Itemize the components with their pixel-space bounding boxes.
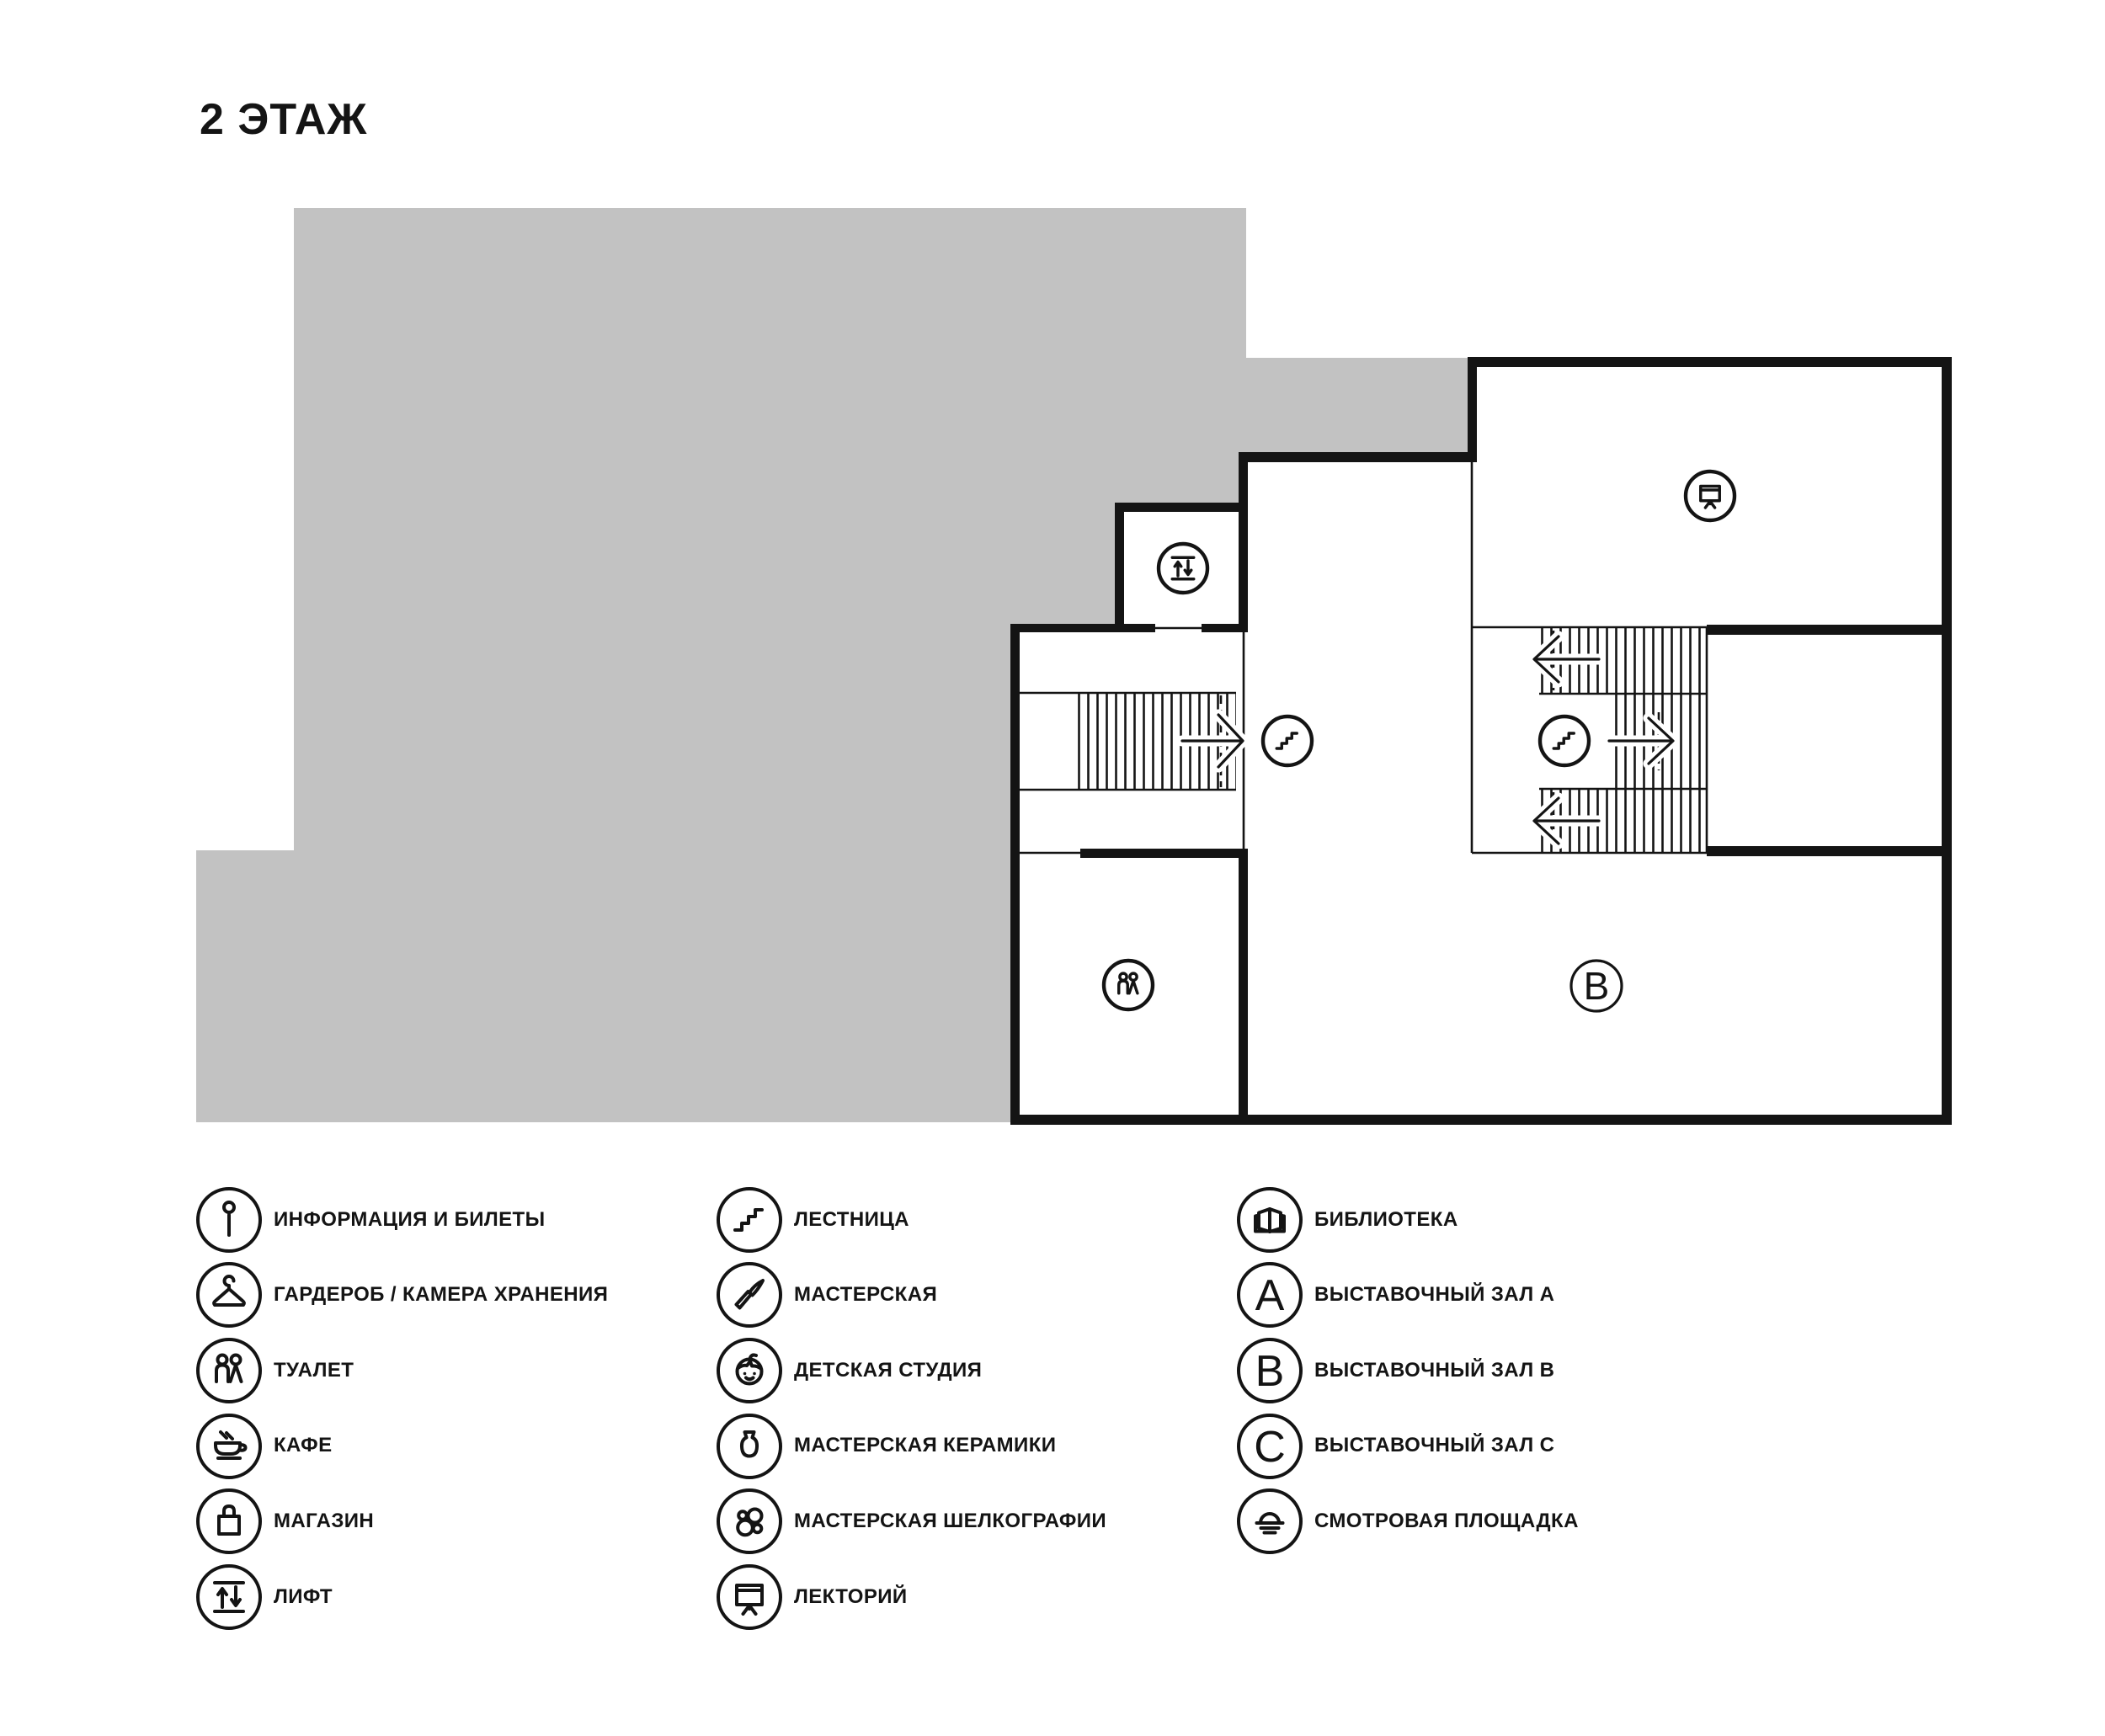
- legend-label: ВЫСТАВОЧНЫЙ ЗАЛ B: [1314, 1360, 1554, 1382]
- legend-column-1: ИНФОРМАЦИЯ И БИЛЕТЫ ГАРДЕРОБ / КАМЕРА ХР…: [195, 1182, 608, 1635]
- hall-b-marker-icon: B: [1236, 1337, 1303, 1404]
- bag-icon: [195, 1488, 263, 1555]
- legend-label: ВЫСТАВОЧНЫЙ ЗАЛ C: [1314, 1435, 1554, 1456]
- silkscreen-icon: [716, 1488, 783, 1555]
- legend-label: ЛЕКТОРИЙ: [794, 1586, 908, 1608]
- legend-item-toilet: ТУАЛЕТ: [195, 1333, 608, 1409]
- legend-item-hall-c: C ВЫСТАВОЧНЫЙ ЗАЛ C: [1236, 1409, 1579, 1484]
- stairs-icon: [716, 1186, 783, 1254]
- book-icon: [1236, 1186, 1303, 1254]
- svg-text:C: C: [1254, 1423, 1286, 1472]
- legend-label: МАСТЕРСКАЯ КЕРАМИКИ: [794, 1435, 1056, 1456]
- legend-item-kids-studio: ДЕТСКАЯ СТУДИЯ: [716, 1333, 1106, 1409]
- legend-column-2: ЛЕСТНИЦА МАСТЕРСКАЯ ДЕТСКАЯ СТУДИЯ МАСТЕ…: [716, 1182, 1106, 1635]
- lecture-screen-icon: [716, 1563, 783, 1631]
- child-icon: [716, 1337, 783, 1404]
- legend-label: МАГАЗИН: [274, 1510, 374, 1532]
- legend-label: КАФЕ: [274, 1435, 332, 1456]
- legend-label: ДЕТСКАЯ СТУДИЯ: [794, 1360, 982, 1382]
- legend-label: ЛИФТ: [274, 1586, 333, 1608]
- hall-b-label: B: [1584, 964, 1610, 1008]
- legend-item-ceramics: МАСТЕРСКАЯ КЕРАМИКИ: [716, 1409, 1106, 1484]
- info-icon: [195, 1186, 263, 1254]
- hanger-icon: [195, 1261, 263, 1329]
- legend-item-shop: МАГАЗИН: [195, 1483, 608, 1559]
- legend-item-lecture-hall: ЛЕКТОРИЙ: [716, 1559, 1106, 1635]
- legend-label: СМОТРОВАЯ ПЛОЩАДКА: [1314, 1510, 1579, 1532]
- svg-text:A: A: [1255, 1271, 1285, 1320]
- legend-label: МАСТЕРСКАЯ ШЕЛКОГРАФИИ: [794, 1510, 1106, 1532]
- legend-item-cloakroom: ГАРДЕРОБ / КАМЕРА ХРАНЕНИЯ: [195, 1258, 608, 1334]
- legend-label: БИБЛИОТЕКА: [1314, 1209, 1458, 1231]
- legend-label: ВЫСТАВОЧНЫЙ ЗАЛ A: [1314, 1284, 1554, 1306]
- brush-icon: [716, 1261, 783, 1329]
- hall-c-marker-icon: C: [1236, 1413, 1303, 1480]
- legend-item-info: ИНФОРМАЦИЯ И БИЛЕТЫ: [195, 1182, 608, 1258]
- legend-item-library: БИБЛИОТЕКА: [1236, 1182, 1579, 1258]
- legend-column-3: БИБЛИОТЕКА A ВЫСТАВОЧНЫЙ ЗАЛ A B ВЫСТАВО…: [1236, 1182, 1579, 1559]
- vase-icon: [716, 1413, 783, 1480]
- viewpoint-icon: [1236, 1488, 1303, 1555]
- legend-label: МАСТЕРСКАЯ: [794, 1284, 937, 1306]
- legend-item-stairs: ЛЕСТНИЦА: [716, 1182, 1106, 1258]
- legend-item-cafe: КАФЕ: [195, 1409, 608, 1484]
- cafe-icon: [195, 1413, 263, 1480]
- legend-item-silkscreen: МАСТЕРСКАЯ ШЕЛКОГРАФИИ: [716, 1483, 1106, 1559]
- floor-plan-page: 2 ЭТАЖ: [0, 0, 2105, 1736]
- legend-item-hall-b: B ВЫСТАВОЧНЫЙ ЗАЛ B: [1236, 1333, 1579, 1409]
- svg-text:B: B: [1255, 1347, 1285, 1396]
- room-side-room: [1711, 635, 1943, 848]
- legend-label: ЛЕСТНИЦА: [794, 1209, 909, 1231]
- elevator-icon: [1159, 544, 1207, 593]
- legend-item-viewpoint: СМОТРОВАЯ ПЛОЩАДКА: [1236, 1483, 1579, 1559]
- legend-item-hall-a: A ВЫСТАВОЧНЫЙ ЗАЛ A: [1236, 1258, 1579, 1334]
- toilet-icon: [195, 1337, 263, 1404]
- hall-b-marker: B: [1571, 961, 1622, 1011]
- legend-label: ГАРДЕРОБ / КАМЕРА ХРАНЕНИЯ: [274, 1284, 608, 1306]
- hall-a-marker-icon: A: [1236, 1261, 1303, 1329]
- stairs-icon: [1540, 716, 1589, 765]
- legend-item-workshop: МАСТЕРСКАЯ: [716, 1258, 1106, 1334]
- legend-label: ИНФОРМАЦИЯ И БИЛЕТЫ: [274, 1209, 545, 1231]
- legend-item-lift: ЛИФТ: [195, 1559, 608, 1635]
- toilet-icon: [1104, 961, 1153, 1009]
- lecture-screen-icon: [1686, 471, 1735, 520]
- stairs-icon: [1263, 716, 1312, 765]
- legend-label: ТУАЛЕТ: [274, 1360, 354, 1382]
- elevator-icon: [195, 1563, 263, 1631]
